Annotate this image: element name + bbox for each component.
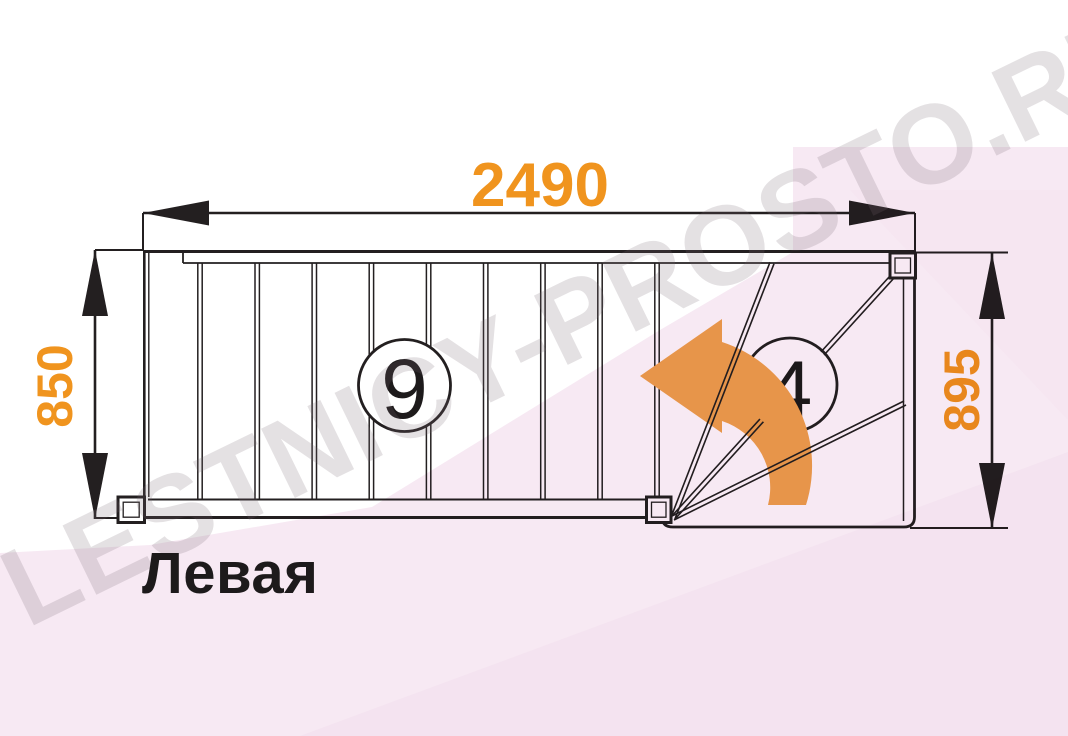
newel-post-top-right xyxy=(890,253,916,278)
left-dimension-label: 850 xyxy=(27,344,83,427)
dimension-left: 850 xyxy=(27,250,143,519)
arrowhead-down-icon xyxy=(979,463,1005,529)
stair-plan-canvas: 2490 850 895 xyxy=(0,0,1068,736)
dimension-right: 895 xyxy=(910,253,1008,530)
straight-steps-count: 9 xyxy=(381,342,428,436)
right-dimension-label: 895 xyxy=(934,348,990,431)
newel-post-winder-corner xyxy=(647,497,672,523)
arrowhead-up-icon xyxy=(82,250,108,316)
arrowhead-up-icon xyxy=(979,253,1005,319)
top-dimension-label: 2490 xyxy=(471,151,609,220)
arrowhead-right-icon xyxy=(849,201,915,226)
arrowhead-left-icon xyxy=(143,201,209,226)
newel-post-bottom-left xyxy=(118,497,145,523)
staircase-diagram: 2490 850 895 xyxy=(0,0,1068,736)
arrowhead-down-icon xyxy=(82,453,108,519)
dimension-top: 2490 xyxy=(143,151,915,252)
stair-type-caption: Левая xyxy=(142,540,318,607)
